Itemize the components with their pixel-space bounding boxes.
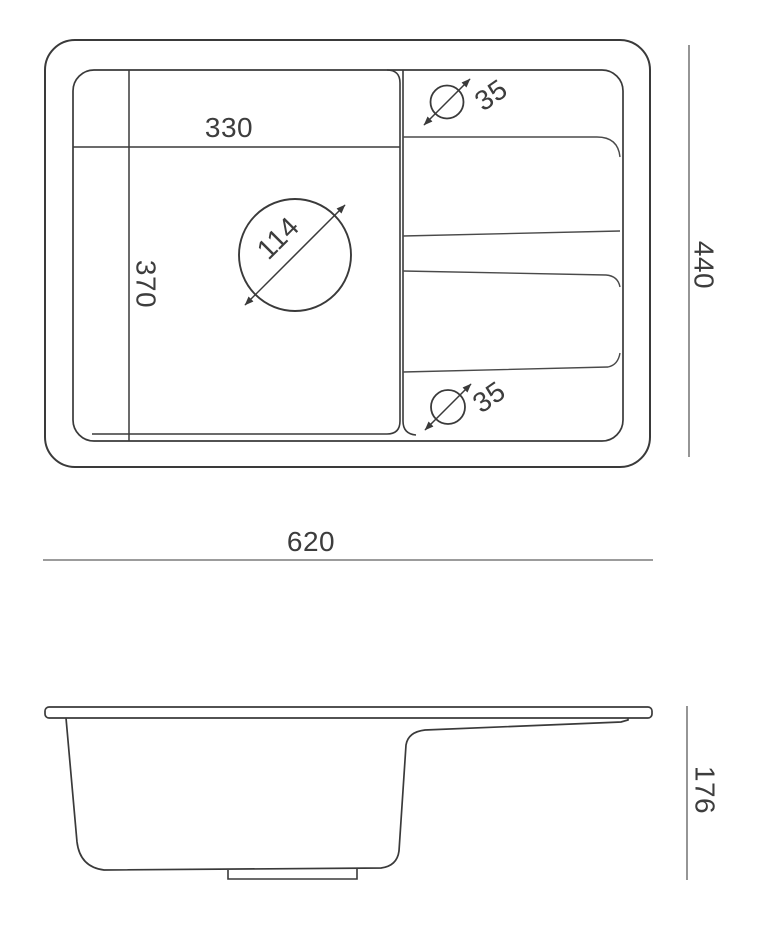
- side-view: [45, 707, 652, 879]
- drain-hole-diameter-line: [245, 205, 345, 305]
- top-view: [45, 40, 650, 467]
- bowl-width-label: 330: [205, 112, 253, 143]
- drainer-groove-1: [403, 137, 620, 157]
- tap-hole-bottom-diameter-label: 35: [467, 375, 511, 419]
- overall-height-label: 176: [690, 766, 721, 814]
- drainer-left-edge: [403, 70, 416, 435]
- drain-hole-symbol: [239, 199, 351, 311]
- labels: 330 370 114 35 35 440 620 176: [131, 73, 721, 814]
- overall-depth-label: 440: [689, 241, 720, 289]
- drainer-groove-4: [403, 353, 620, 372]
- sink-outer-edge: [45, 40, 650, 467]
- drawing-svg: 330 370 114 35 35 440 620 176: [0, 0, 770, 933]
- tap-hole-top-diameter-label: 35: [469, 73, 513, 117]
- side-view-drain-ledge: [228, 869, 357, 879]
- sink-technical-drawing: 330 370 114 35 35 440 620 176: [0, 0, 770, 933]
- tap-hole-top-symbol: [424, 79, 470, 125]
- tap-hole-bottom-symbol: [425, 384, 471, 430]
- drain-hole-diameter-label: 114: [251, 211, 306, 266]
- overall-width-label: 620: [287, 526, 335, 557]
- side-view-body-profile: [66, 718, 628, 870]
- sink-inner-rim: [73, 70, 623, 441]
- drainer-groove-3: [403, 271, 620, 287]
- drainer-groove-2: [403, 231, 620, 236]
- side-view-rim: [45, 707, 652, 718]
- dimension-lines: [43, 45, 689, 880]
- drainer-grooves: [403, 137, 620, 372]
- bowl-depth-label: 370: [131, 260, 162, 308]
